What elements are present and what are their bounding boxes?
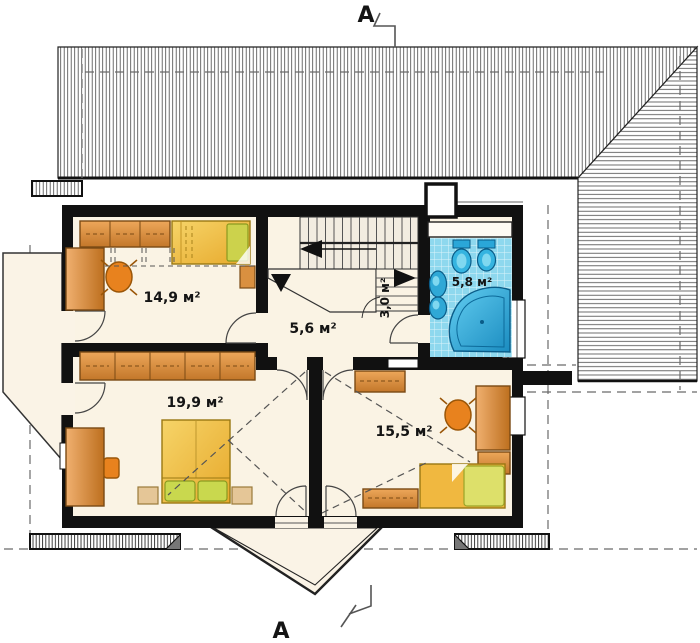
bathroom-shelf xyxy=(428,222,512,237)
room-label-bedroom-bottom-right: 15,5 м² xyxy=(376,424,433,440)
desk-1 xyxy=(66,248,104,310)
terrace-door-opening-2 xyxy=(60,383,75,415)
pillow xyxy=(165,481,195,501)
room-label-bedroom-top-left: 14,9 м² xyxy=(144,290,201,306)
office-chair-1 xyxy=(101,260,137,295)
desk-2 xyxy=(66,428,104,506)
bed-single-1 xyxy=(172,221,250,264)
nightstand-left xyxy=(138,487,158,504)
room-label-hall: 5,6 м² xyxy=(289,321,336,337)
toilet xyxy=(452,240,471,273)
chimney xyxy=(426,184,456,217)
hall-door-opening-left xyxy=(277,357,307,370)
section-marker-bottom: A xyxy=(272,585,371,643)
bed-single-3 xyxy=(420,464,505,508)
section-letter-top: A xyxy=(357,3,374,28)
section-letter-bottom: A xyxy=(272,619,289,643)
wall-niche xyxy=(388,359,418,368)
nightstand xyxy=(240,266,255,288)
terrace-door-opening-1 xyxy=(60,311,75,343)
terrace-left xyxy=(3,253,62,460)
bathroom xyxy=(428,222,512,357)
roof-eave-strip-left xyxy=(32,181,82,196)
hall-door-opening-right xyxy=(323,357,353,370)
bidet xyxy=(478,240,496,271)
floorplan-page: 14,9 м² 5,6 м² 3,0 м² 5,8 м² 19,9 м² 15,… xyxy=(0,0,700,643)
section-marker-top: A xyxy=(357,3,395,47)
bed-double xyxy=(162,420,230,503)
floorplan-canvas: 14,9 м² 5,6 м² 3,0 м² 5,8 м² 19,9 м² 15,… xyxy=(0,0,700,643)
room-label-bedroom-bottom-left: 19,9 м² xyxy=(167,395,224,411)
pillow xyxy=(198,481,227,501)
desk-3 xyxy=(476,386,510,450)
office-chair-3 xyxy=(440,398,476,433)
nightstand-right xyxy=(232,487,252,504)
balcony-bottom xyxy=(203,522,387,594)
chair-2 xyxy=(104,458,119,478)
room-label-stair-closet: 3,0 м² xyxy=(378,278,392,319)
pillow xyxy=(464,466,504,506)
room-label-bathroom: 5,8 м² xyxy=(452,275,493,289)
